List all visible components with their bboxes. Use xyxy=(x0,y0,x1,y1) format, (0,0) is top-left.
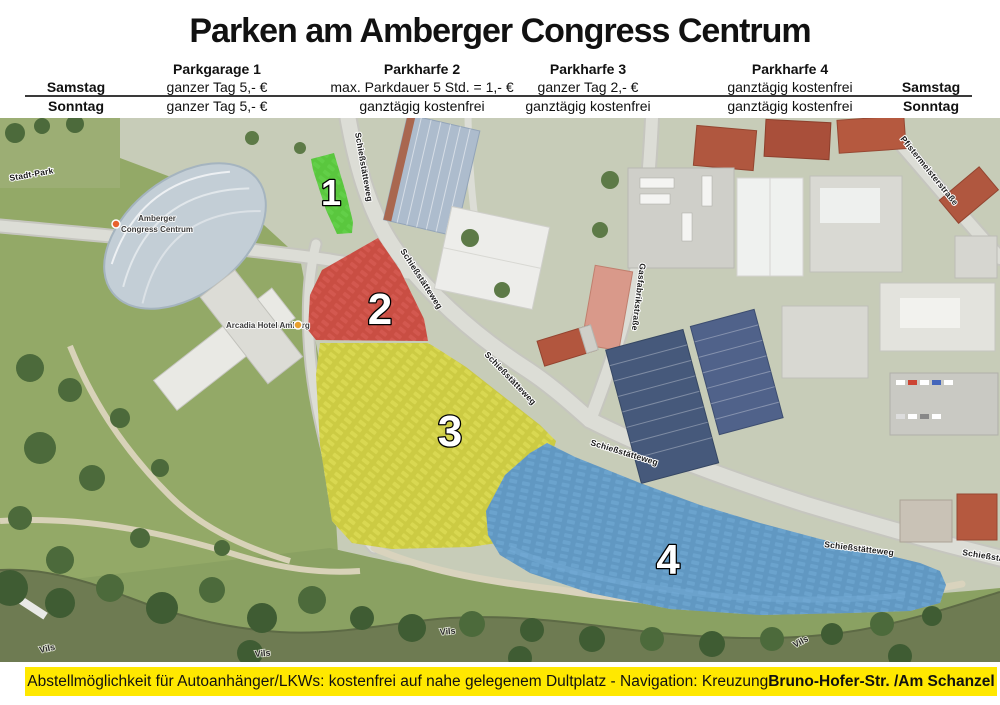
column-header-parkgarage-1: Parkgarage 1 xyxy=(173,61,261,77)
day-label-samstag-right: Samstag xyxy=(902,79,960,95)
price-samstag-parkharfe-2: max. Parkdauer 5 Std. = 1,- € xyxy=(330,79,513,95)
price-samstag-parkharfe-4: ganztägig kostenfrei xyxy=(727,79,852,95)
pricing-header-row: Parkgarage 1 Parkharfe 2 Parkharfe 3 Par… xyxy=(0,61,1000,78)
price-samstag-parkgarage-1: ganzer Tag 5,- € xyxy=(167,79,268,95)
river-label-vils: Vils xyxy=(439,626,456,637)
price-sonntag-parkharfe-4: ganztägig kostenfrei xyxy=(727,98,852,114)
poi-marker-dot xyxy=(112,220,120,228)
page-title: Parken am Amberger Congress Centrum xyxy=(0,12,1000,51)
poi-arcadia-hotel-amberg: Arcadia Hotel Amberg xyxy=(226,321,310,330)
footer-text: Abstellmöglichkeit für Autoanhänger/LKWs… xyxy=(27,673,768,691)
price-sonntag-parkgarage-1: ganzer Tag 5,- € xyxy=(167,98,268,114)
table-divider xyxy=(25,95,972,97)
day-label-sonntag-right: Sonntag xyxy=(903,98,959,114)
zone-1-number: 1 xyxy=(321,172,341,213)
day-label-samstag-left: Samstag xyxy=(47,79,105,95)
svg-text:Amberger: Amberger xyxy=(138,214,176,223)
aerial-parking-map: 1 2 3 4 Schießstätteweg Schießstätteweg … xyxy=(0,118,1000,662)
svg-text:Congress Centrum: Congress Centrum xyxy=(121,225,193,234)
footer-navigation-target: Bruno-Hofer-Str. /Am Schanzel xyxy=(768,673,995,691)
poi-marker-dot xyxy=(294,321,302,329)
zone-2-number: 2 xyxy=(368,285,392,334)
river-label-vils: Vils xyxy=(254,648,271,659)
price-samstag-parkharfe-3: ganzer Tag 2,- € xyxy=(538,79,639,95)
column-header-parkharfe-4: Parkharfe 4 xyxy=(752,61,828,77)
zone-4-number: 4 xyxy=(656,536,680,583)
pricing-row-samstag: Samstag ganzer Tag 5,- € max. Parkdauer … xyxy=(0,79,1000,96)
column-header-parkharfe-2: Parkharfe 2 xyxy=(384,61,460,77)
price-sonntag-parkharfe-3: ganztägig kostenfrei xyxy=(525,98,650,114)
day-label-sonntag-left: Sonntag xyxy=(48,98,104,114)
column-header-parkharfe-3: Parkharfe 3 xyxy=(550,61,626,77)
pricing-row-sonntag: Sonntag ganzer Tag 5,- € ganztägig koste… xyxy=(0,98,1000,115)
footer-info-bar: Abstellmöglichkeit für Autoanhänger/LKWs… xyxy=(25,667,997,696)
zone-3-number: 3 xyxy=(438,407,462,456)
price-sonntag-parkharfe-2: ganztägig kostenfrei xyxy=(359,98,484,114)
